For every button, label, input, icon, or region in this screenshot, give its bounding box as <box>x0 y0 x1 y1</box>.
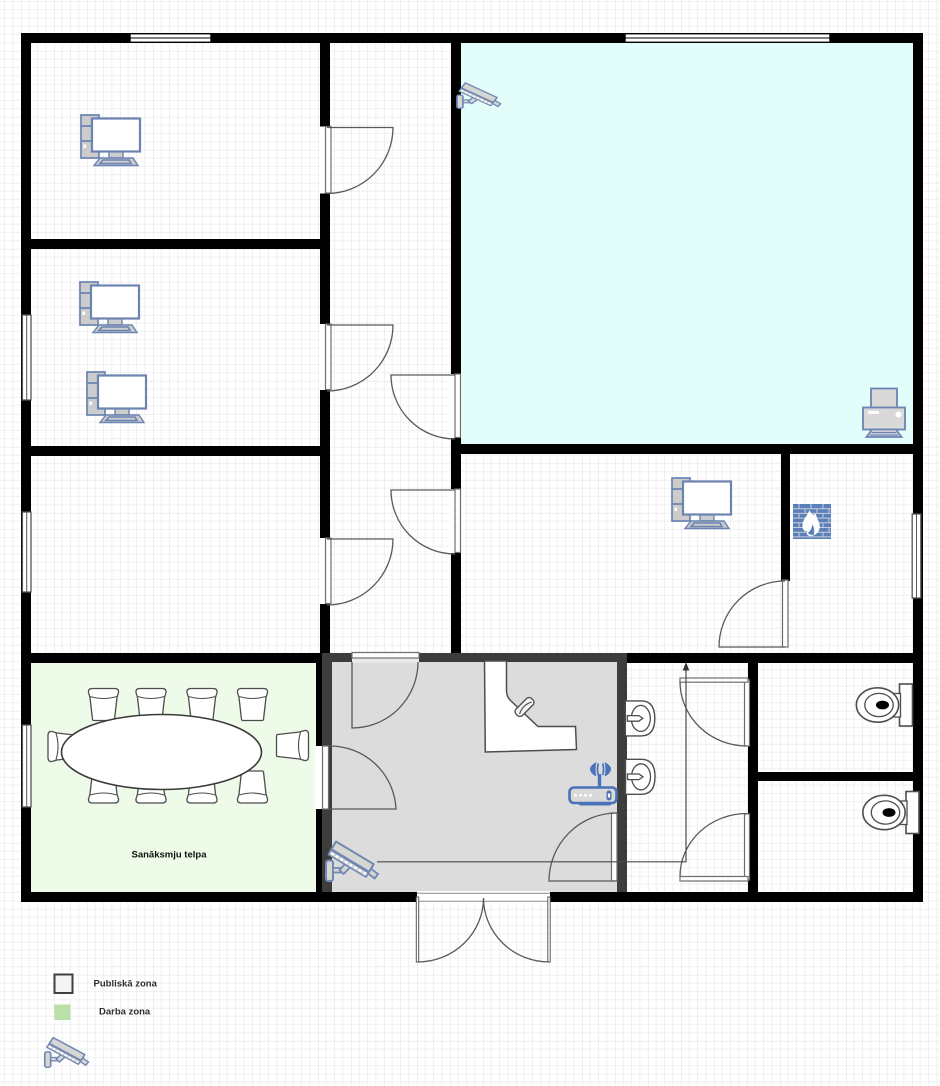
svg-text:Darba zona: Darba zona <box>99 1007 151 1018</box>
svg-text:Publiskā zona: Publiskā zona <box>94 979 158 990</box>
svg-text:Sanāksmju telpa: Sanāksmju telpa <box>132 850 208 861</box>
